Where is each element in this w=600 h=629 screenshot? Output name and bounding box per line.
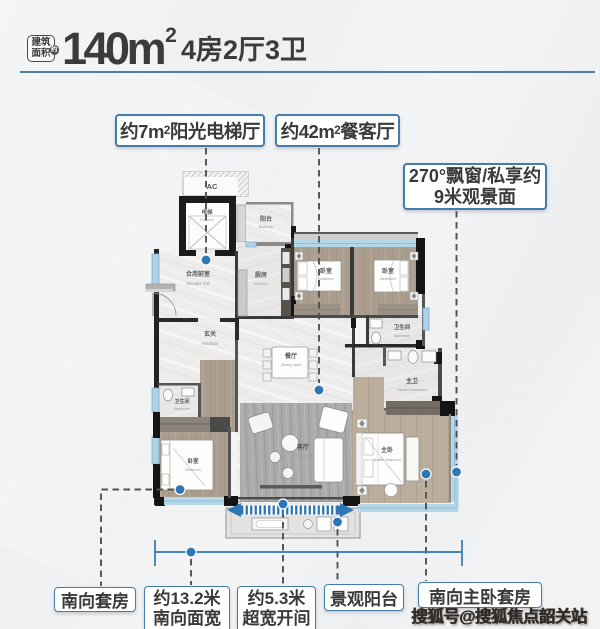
- svg-text:客厅: 客厅: [296, 443, 309, 451]
- svg-text:卫生间: 卫生间: [174, 398, 189, 405]
- svg-text:Bedroom: Bedroom: [185, 468, 200, 472]
- svg-text:餐厅: 餐厅: [284, 352, 297, 360]
- svg-text:Bathroom: Bathroom: [174, 407, 190, 411]
- svg-text:玄关: 玄关: [204, 330, 216, 338]
- svg-text:Bedroom: Bedroom: [318, 277, 333, 281]
- svg-text:电梯: 电梯: [201, 208, 213, 216]
- svg-text:主卫: 主卫: [406, 377, 418, 385]
- svg-text:Kitchen: Kitchen: [254, 281, 267, 286]
- svg-text:厨房: 厨房: [255, 271, 267, 279]
- svg-text:Bedroom: Bedroom: [380, 277, 395, 281]
- svg-text:Living room: Living room: [293, 454, 313, 458]
- svg-text:Bathroom: Bathroom: [394, 334, 410, 338]
- svg-text:合用前室: 合用前室: [186, 270, 210, 278]
- svg-text:阳台: 阳台: [260, 215, 272, 223]
- svg-text:卫生间: 卫生间: [394, 323, 411, 331]
- svg-text:Elevator: Elevator: [200, 218, 215, 222]
- svg-text:卧室: 卧室: [187, 457, 199, 465]
- svg-text:AC: AC: [207, 182, 218, 191]
- svg-text:Vestibule: Vestibule: [202, 341, 220, 346]
- svg-text:卧室: 卧室: [382, 267, 394, 275]
- svg-text:主卧: 主卧: [381, 446, 393, 454]
- svg-text:卧室: 卧室: [320, 267, 332, 275]
- svg-text:Master bedroom: Master bedroom: [373, 458, 401, 462]
- svg-text:Balcony: Balcony: [259, 224, 273, 229]
- svg-text:Elevator hall: Elevator hall: [186, 281, 209, 286]
- svg-text:Dining room: Dining room: [281, 363, 301, 367]
- svg-text:Master Bathroom: Master Bathroom: [397, 388, 426, 392]
